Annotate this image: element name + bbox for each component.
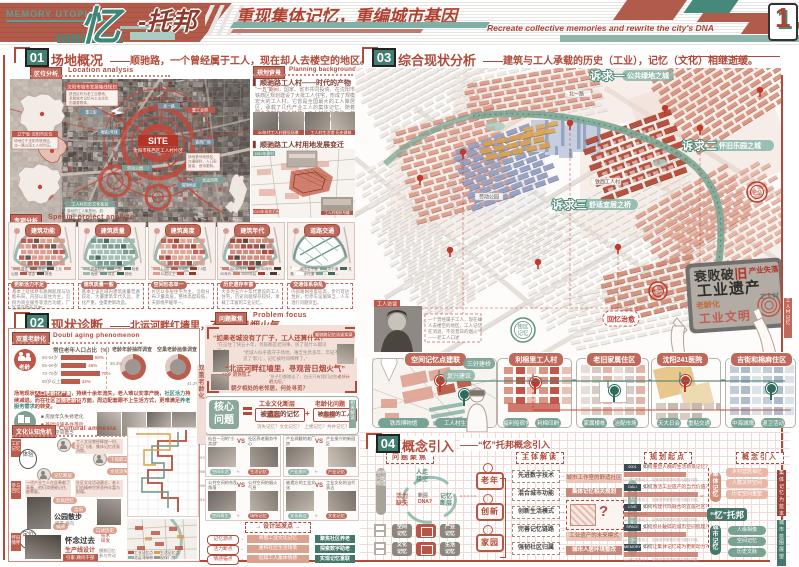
svg-text:沈阳市铁西区工人村片区: 沈阳市铁西区工人村片区 (133, 147, 183, 154)
svg-text:铁西区作为老工业基地，: 铁西区作为老工业基地， (69, 91, 109, 96)
svg-text:1952年建村: 1952年建村 (254, 151, 274, 156)
svg-text:交通便利，人口密: 交通便利，人口密 (188, 159, 217, 164)
svg-text:北一路: 北一路 (163, 104, 175, 109)
svg-text:2023年现状范围: 2023年现状范围 (252, 209, 280, 214)
svg-text:曾经的工人聚居地，如: 曾经的工人聚居地，如 (67, 208, 103, 213)
svg-text:工人村历史文化街区: 工人村历史文化街区 (71, 201, 109, 208)
svg-text:工人村现状鸟瞰: 工人村现状鸟瞰 (324, 210, 350, 215)
svg-text:承载城市记忆与工业文化: 承载城市记忆与工业文化 (69, 96, 109, 101)
svg-text:地铁1号线: 地铁1号线 (100, 130, 118, 135)
svg-text:铁西广场: 铁西广场 (195, 140, 210, 145)
svg-text:度高，亟待更新。: 度高，亟待更新。 (188, 163, 217, 168)
svg-text:场地紧邻地铁站，: 场地紧邻地铁站， (188, 154, 217, 159)
svg-text:劳动公园: 劳动公园 (127, 165, 143, 171)
svg-text:北运河带: 北运河带 (202, 177, 218, 183)
svg-text:重工街: 重工街 (85, 110, 97, 115)
svg-text:的重要载体。: 的重要载体。 (69, 100, 91, 105)
svg-text:沈阳市城市发展轴线规划: 沈阳市城市发展轴线规划 (67, 84, 117, 91)
svg-text:北一路以南工人村片区。: 北一路以南工人村片区。 (14, 143, 54, 148)
svg-text:滑翔地区: 滑翔地区 (181, 183, 196, 188)
svg-text:重工业带: 重工业带 (192, 107, 208, 113)
svg-text:SITE: SITE (148, 136, 168, 146)
svg-text:辽宁省·沈阳市区位: 辽宁省·沈阳市区位 (18, 131, 53, 138)
svg-text:场地位于沈阳市铁西区，: 场地位于沈阳市铁西区， (14, 138, 54, 143)
